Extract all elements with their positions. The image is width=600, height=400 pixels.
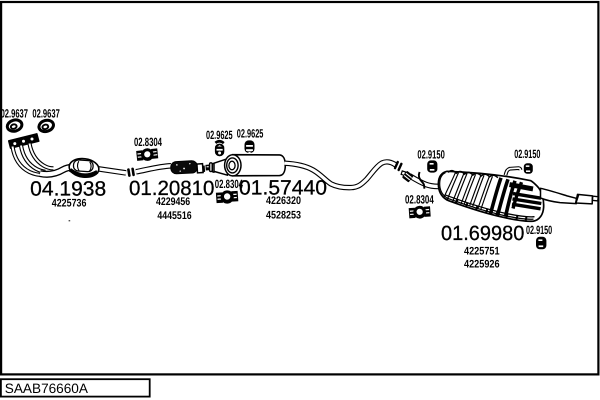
svg-text:02.9625: 02.9625 (237, 127, 264, 141)
svg-text:02.8304: 02.8304 (134, 135, 162, 149)
svg-text:02.9637: 02.9637 (1, 107, 29, 121)
svg-text:02.9150: 02.9150 (526, 223, 552, 237)
svg-text:4225751: 4225751 (464, 246, 500, 258)
svg-text:4445516: 4445516 (157, 210, 191, 222)
svg-text:02.9150: 02.9150 (417, 148, 445, 162)
svg-text:SAAB76660A: SAAB76660A (5, 381, 89, 396)
svg-text:4528253: 4528253 (266, 210, 301, 222)
svg-text:4229456: 4229456 (156, 196, 190, 208)
svg-text:02.9150: 02.9150 (514, 147, 540, 161)
svg-text:02.9637: 02.9637 (32, 107, 60, 121)
svg-text:02.8304: 02.8304 (405, 193, 434, 207)
svg-text:4226320: 4226320 (266, 195, 301, 207)
svg-text:02.9625: 02.9625 (206, 128, 233, 142)
svg-text:4225736: 4225736 (52, 198, 87, 210)
svg-text:01.69980: 01.69980 (441, 222, 524, 245)
svg-text:4225926: 4225926 (464, 259, 500, 271)
